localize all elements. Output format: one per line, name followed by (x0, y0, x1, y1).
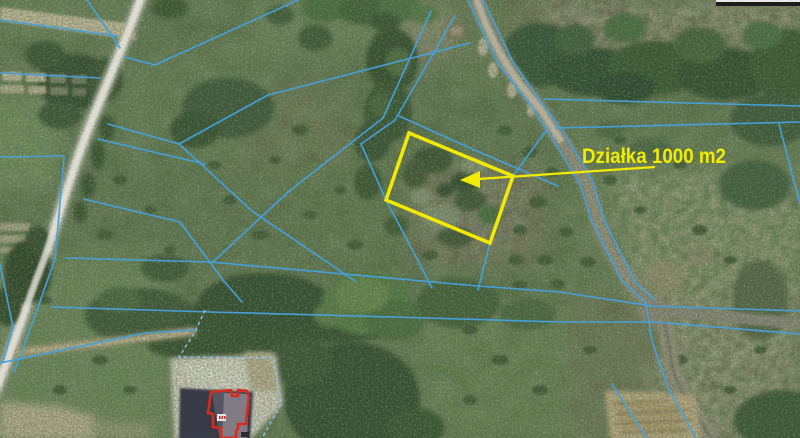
svg-text:Działka 1000 m2: Działka 1000 m2 (582, 144, 726, 168)
